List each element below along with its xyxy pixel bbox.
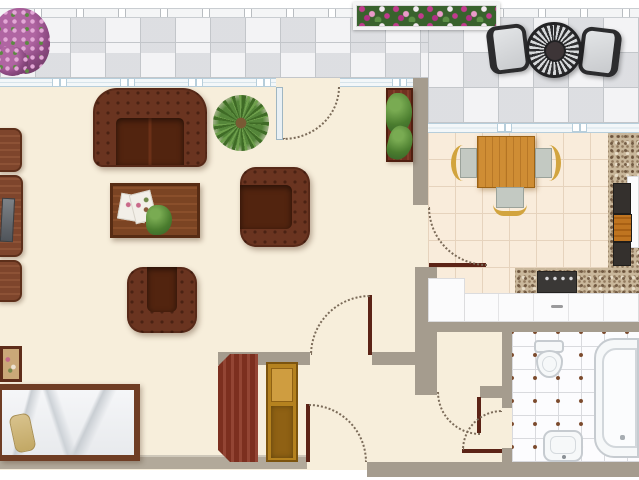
- bathtub-inner: [602, 348, 637, 448]
- wall-hall-top: [372, 352, 416, 365]
- window-mullion: [256, 78, 271, 87]
- kitchen-counter-bottom: [515, 268, 639, 293]
- wall-hall-stub: [480, 386, 502, 398]
- cabinet-shelf-top: [271, 368, 293, 402]
- armchair-right: [240, 167, 310, 247]
- window-mullion: [392, 78, 407, 87]
- dining-table: [477, 136, 535, 188]
- chair-back: [451, 145, 464, 181]
- armchair-lower-seat: [147, 267, 177, 312]
- bathtub: [594, 338, 639, 458]
- wall-bottom-right: [367, 462, 639, 477]
- dining-chair-right: [534, 145, 561, 181]
- bathtub-drain: [620, 435, 625, 440]
- armchair-lower: [127, 267, 197, 333]
- appliance-dark-upper: [613, 183, 631, 214]
- tv-wall-unit-bottom: [0, 260, 22, 302]
- patio-table: [526, 22, 582, 78]
- coffee-table-plant: [146, 205, 172, 235]
- wall-living-kitchen-upper: [413, 78, 428, 205]
- tv-wall-unit-middle: [0, 175, 23, 257]
- sofa: [93, 88, 207, 167]
- appliance-wood-front: [613, 214, 632, 242]
- washbasin: [543, 430, 583, 462]
- wardrobe: [218, 354, 258, 462]
- window-mullion: [120, 78, 135, 87]
- balcony-door-leaf: [276, 87, 283, 140]
- tv-wall-unit-top: [0, 128, 22, 172]
- flower-planter-box: [353, 2, 500, 30]
- washbasin-tap: [562, 455, 566, 459]
- dining-chair-bottom: [493, 187, 527, 216]
- window-mullion: [188, 78, 203, 87]
- living-room-window-wall: [0, 78, 276, 87]
- armchair-right-seat: [240, 185, 292, 229]
- patio-chair-left: [485, 23, 531, 76]
- terrace-railing: [0, 8, 639, 18]
- sofa-seat: [116, 118, 184, 165]
- washbasin-inner: [550, 436, 576, 454]
- window-mullion: [572, 123, 587, 132]
- stove-cooktop: [537, 271, 577, 293]
- picture-tray: [0, 346, 22, 382]
- wall-bathroom-left-lower: [502, 448, 512, 462]
- open-golden-cabinet: [266, 362, 298, 462]
- window-mullion: [497, 123, 512, 132]
- wall-bathroom-left-upper: [502, 332, 512, 408]
- cabinet-handles: [551, 305, 563, 308]
- patio-chair-right: [577, 26, 623, 79]
- stove-knobs: [543, 276, 573, 281]
- bed: [0, 384, 140, 461]
- floor-plan: [0, 0, 639, 480]
- window-mullion: [52, 78, 67, 87]
- appliance-dark-lower: [613, 242, 631, 266]
- kitchen-counter-left: [428, 278, 465, 322]
- cabinet-interior: [271, 406, 293, 458]
- coffee-table: [110, 183, 200, 238]
- kitchen-window-wall: [428, 123, 639, 133]
- dining-chair-left: [451, 145, 478, 181]
- flower-bush-small: [0, 46, 28, 76]
- patio-table-center: [544, 40, 566, 62]
- wall-kitchen-bathroom: [428, 322, 639, 332]
- toilet-bowl-inner: [542, 356, 557, 372]
- chair-back: [493, 204, 527, 216]
- bed-pillow: [8, 412, 36, 454]
- chair-back: [548, 145, 561, 181]
- tv-screen: [0, 198, 15, 243]
- potted-palm: [213, 95, 269, 151]
